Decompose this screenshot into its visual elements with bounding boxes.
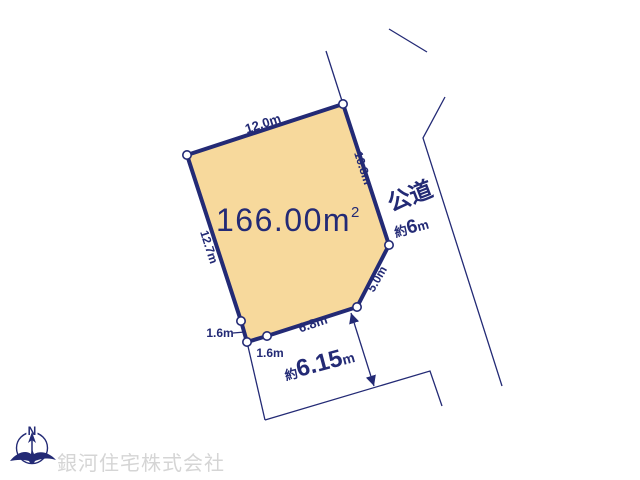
vertex-marker (385, 241, 393, 249)
vertex-marker (339, 100, 347, 108)
dimension-bevel: 1.6m (206, 326, 233, 340)
dimension-bottom-left: 1.6m (256, 346, 283, 360)
vertex-marker (353, 303, 361, 311)
road-name-label: 公道 (384, 176, 436, 217)
frontage-measure-arrow (351, 313, 374, 386)
vertex-marker (237, 317, 245, 325)
area-label: 166.00m2 (216, 202, 361, 238)
vertex-marker (243, 338, 251, 346)
vertex-marker (263, 332, 271, 340)
lot-diagram: 166.00m2 12.0m 10.8m 12.7m 5.0m 6.8m 1.6… (0, 0, 640, 480)
road-left-edge-extension-line (326, 51, 343, 104)
company-watermark: 銀河住宅株式会社 (57, 452, 225, 475)
vertex-marker (183, 151, 191, 159)
frontage-measure-label: 約6.15m (281, 341, 358, 386)
neighbor-boundary-line-top (389, 29, 427, 52)
road-width-label: 約6m (392, 213, 431, 242)
compass-icon: N (10, 424, 56, 464)
road-right-edge-line (423, 97, 502, 386)
